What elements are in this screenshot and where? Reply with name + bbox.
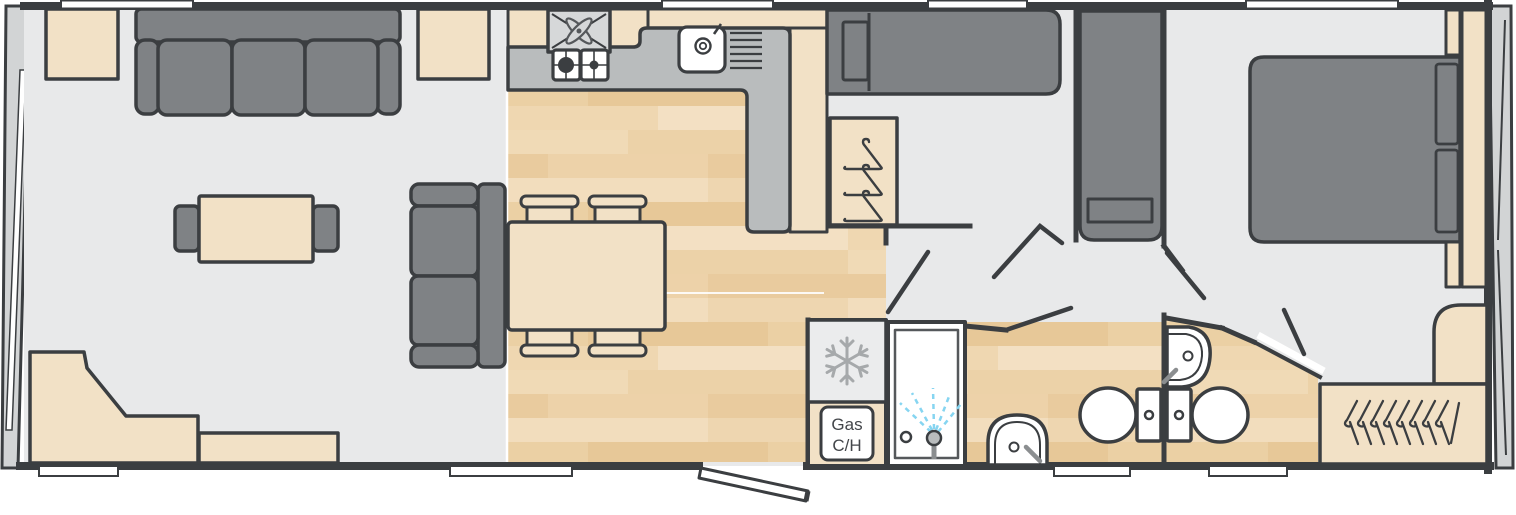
sofa-armrest-left (136, 40, 159, 114)
window (61, 1, 193, 9)
gas-label-line2: C/H (832, 436, 861, 455)
kitchen-cabinet (648, 9, 827, 28)
window (39, 466, 118, 476)
corner-dresser-unit (1434, 305, 1487, 384)
window (1054, 466, 1130, 476)
bed-pillow (1436, 64, 1458, 144)
stool (313, 206, 338, 251)
stool (175, 206, 199, 251)
gas-central-heating-boiler: Gas C/H (821, 407, 873, 460)
entrance-door (699, 468, 808, 501)
single-bed (1080, 11, 1162, 240)
toilet-icon (1080, 388, 1161, 442)
window (928, 1, 1027, 9)
dining-table (508, 222, 665, 330)
sofa-cushion (411, 206, 478, 276)
basin-icon (988, 415, 1047, 465)
shower-control-icon (901, 432, 911, 442)
utility-unit: Gas C/H (808, 320, 886, 466)
low-bench-unit (199, 433, 338, 463)
bedside-unit (1446, 242, 1460, 287)
coffee-table-set (175, 196, 338, 262)
extractor-fan-icon (548, 10, 610, 52)
hob-burner-icon (553, 50, 608, 80)
sofa-armrest-bottom (411, 345, 478, 367)
side-table-left (46, 9, 118, 79)
double-bed (1250, 57, 1460, 242)
right-bay-window (1489, 6, 1513, 468)
wardrobe (1320, 384, 1487, 464)
sofa-armrest-right (377, 40, 400, 114)
twin-bedroom-2 (1080, 11, 1162, 240)
sofa-armrest-top (411, 184, 478, 206)
wardrobe (830, 118, 897, 225)
gas-label-line1: Gas (831, 415, 862, 434)
corner-basin-icon (1164, 327, 1210, 387)
window (1246, 1, 1398, 9)
toilet-icon (1167, 388, 1248, 442)
bed-pillow (1436, 150, 1458, 232)
sofa-three-seat (136, 9, 400, 115)
sofa-cushion (305, 40, 378, 115)
window (1209, 466, 1287, 476)
coffee-table (199, 196, 313, 262)
window (450, 466, 572, 476)
sofa-cushion (232, 40, 305, 115)
shower-enclosure (888, 322, 965, 466)
headboard-unit (1462, 10, 1486, 287)
sofa-cushion (411, 276, 478, 345)
caravan-floorplan: Gas C/H (0, 0, 1516, 515)
floorplan-svg: Gas C/H (0, 0, 1516, 515)
bedside-unit (1446, 10, 1460, 55)
sofa-two-seat (411, 184, 505, 367)
kitchen-cabinet-run (790, 28, 827, 232)
window (662, 1, 773, 9)
side-table-right (418, 9, 489, 79)
sofa-cushion (158, 40, 232, 115)
